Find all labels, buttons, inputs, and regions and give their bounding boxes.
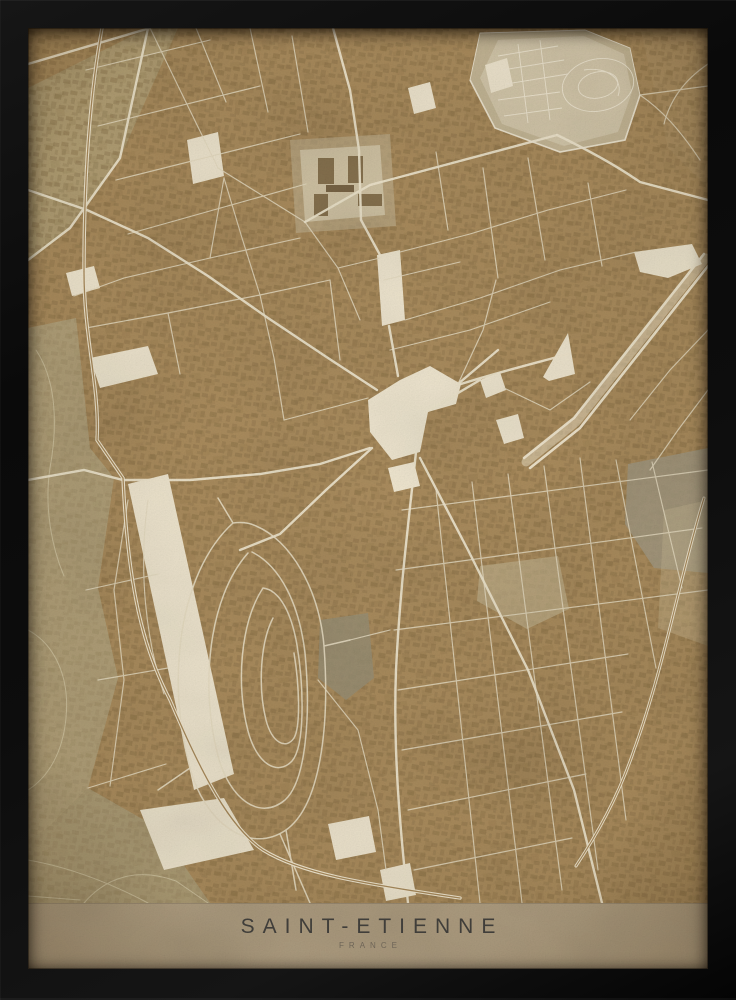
map-poster: SAINT-ETIENNE FRANCE	[28, 28, 708, 969]
saint-etienne-city-map	[28, 28, 708, 969]
framed-map-poster: SAINT-ETIENNE FRANCE	[0, 0, 736, 1000]
